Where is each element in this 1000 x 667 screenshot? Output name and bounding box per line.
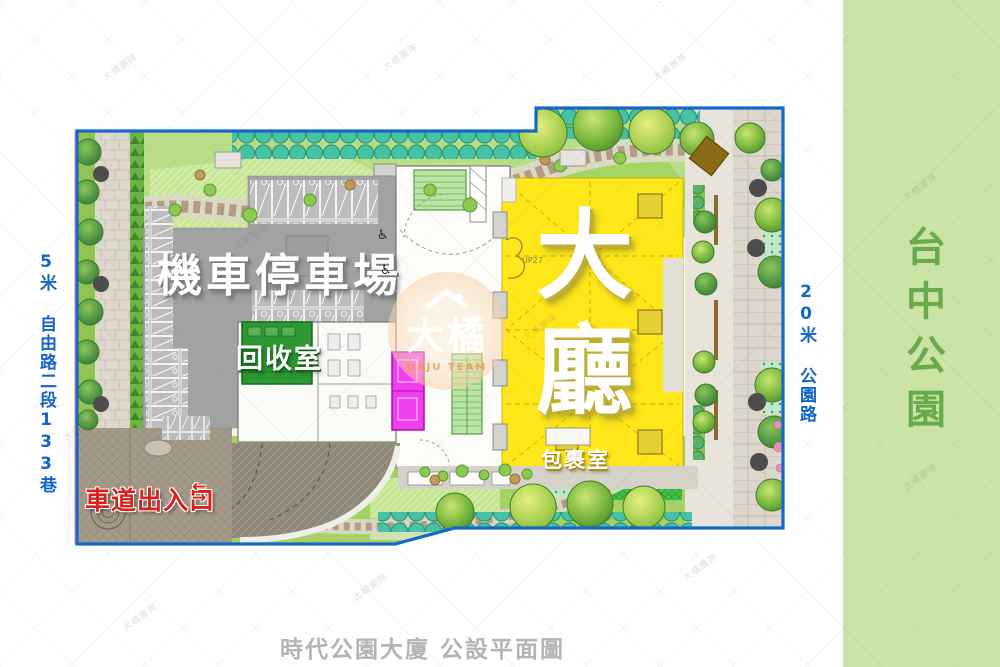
wheelchair-icon: ♿ [380,263,392,278]
stair-up-note: UP27 [522,256,543,265]
two-way-arrow-icon: ← → [192,482,206,504]
road-label-left: 5米 自由路二段133巷 [34,252,59,495]
page: 機車停車場 回收室 大廳 包裹室 車道出入口 ← → UP27 ♿ ♿ 5米 自… [0,0,1000,667]
arrow-right-icon: → [192,493,206,504]
parking-area-label: 機車停車場 [157,239,402,304]
wheelchair-icon: ♿ [377,228,389,243]
recycle-room-label: 回收室 [236,337,323,376]
park-band-label: 台中公園 [893,226,951,442]
lobby-label: 大廳 [527,204,624,434]
site-content [75,101,790,544]
road-label-right: 20米 公園路 [794,282,819,424]
page-title: 時代公園大廈 公設平面圖 [0,630,845,664]
park-band: 台中公園 [843,0,1000,667]
lobby-recess [663,258,683,392]
package-room-label: 包裹室 [541,444,610,474]
